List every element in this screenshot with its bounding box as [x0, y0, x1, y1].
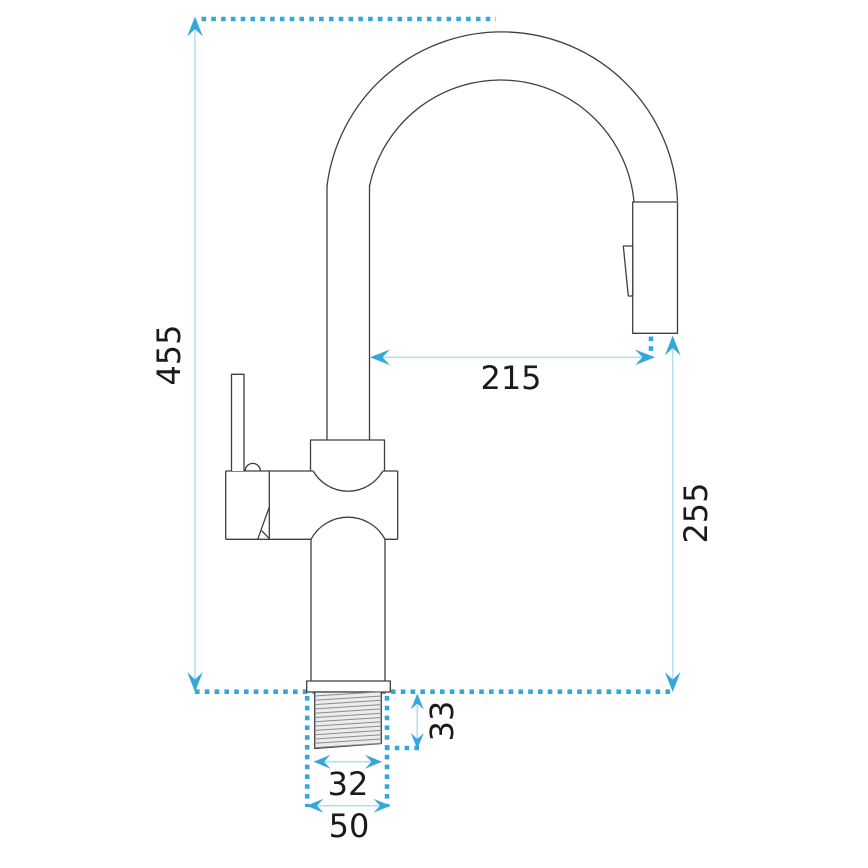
spout-reach-label: 215: [480, 359, 541, 397]
handle-lever: [232, 374, 245, 471]
faucet-outline: [226, 32, 678, 749]
base-diameter-label: 50: [329, 807, 370, 845]
total-height-label: 455: [150, 324, 188, 385]
base-flange: [307, 681, 391, 692]
valve-collar-bulge-arc: [314, 472, 383, 492]
dimension-shafts: [195, 22, 673, 806]
handle-detail-lines: [258, 507, 270, 539]
handle-pivot-dome: [245, 463, 260, 471]
body-bottom-arc: [311, 517, 385, 539]
outlet-height-label: 255: [677, 482, 715, 543]
faucet-dimension-drawing: 455 215 255 33 32 50: [0, 0, 868, 868]
drawing-svg: 455 215 255 33 32 50: [0, 0, 868, 868]
dotted-reference-lines: [195, 19, 674, 807]
base-column: [311, 539, 385, 681]
spout-outer-arc: [327, 32, 678, 201]
shank-diameter-label: 32: [328, 765, 369, 803]
body-edges: [226, 471, 398, 539]
spray-head-clip: [623, 246, 632, 296]
valve-collar: [311, 440, 385, 471]
shank-length-label: 33: [423, 701, 461, 742]
spout-inner-arc: [370, 80, 635, 202]
spray-head: [633, 202, 678, 333]
